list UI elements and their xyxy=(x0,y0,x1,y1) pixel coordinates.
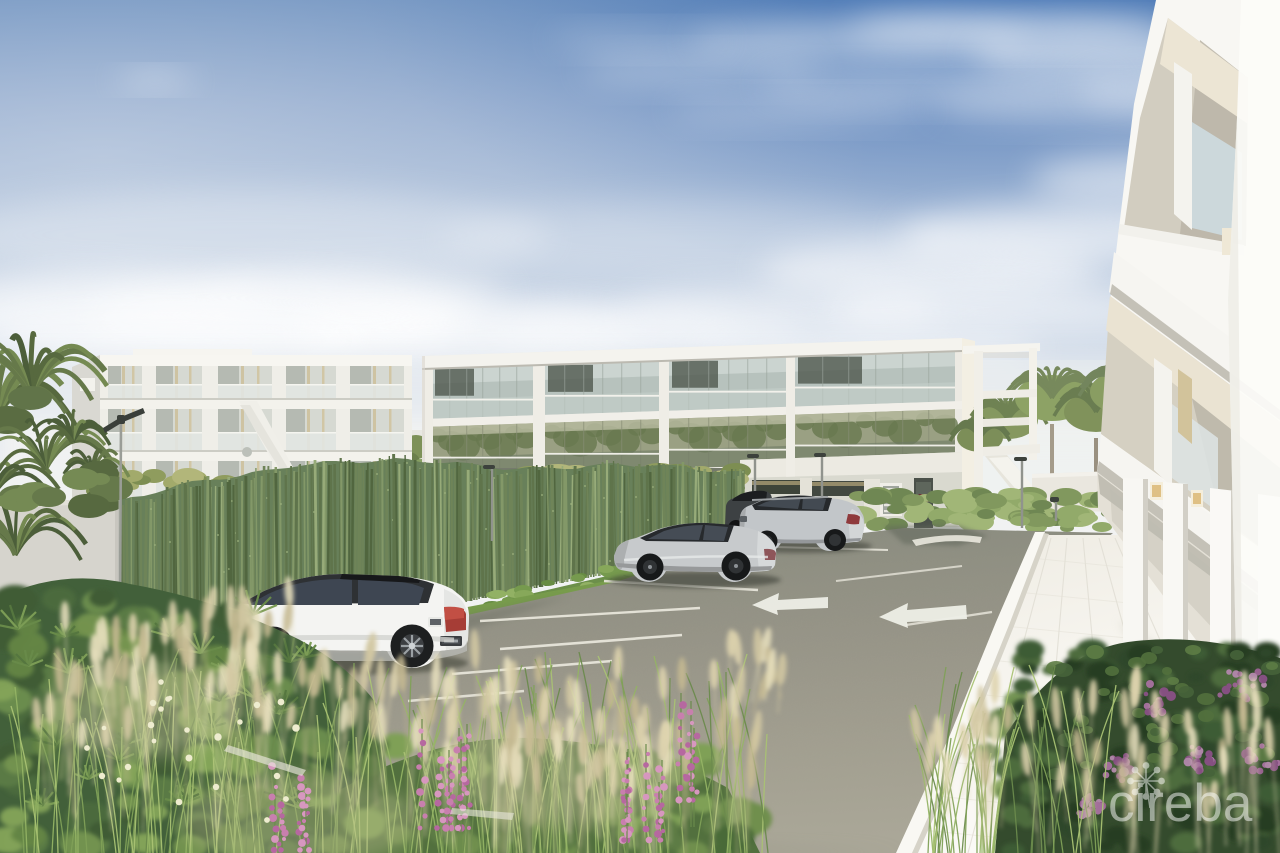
svg-text:cireba: cireba xyxy=(1108,774,1253,833)
